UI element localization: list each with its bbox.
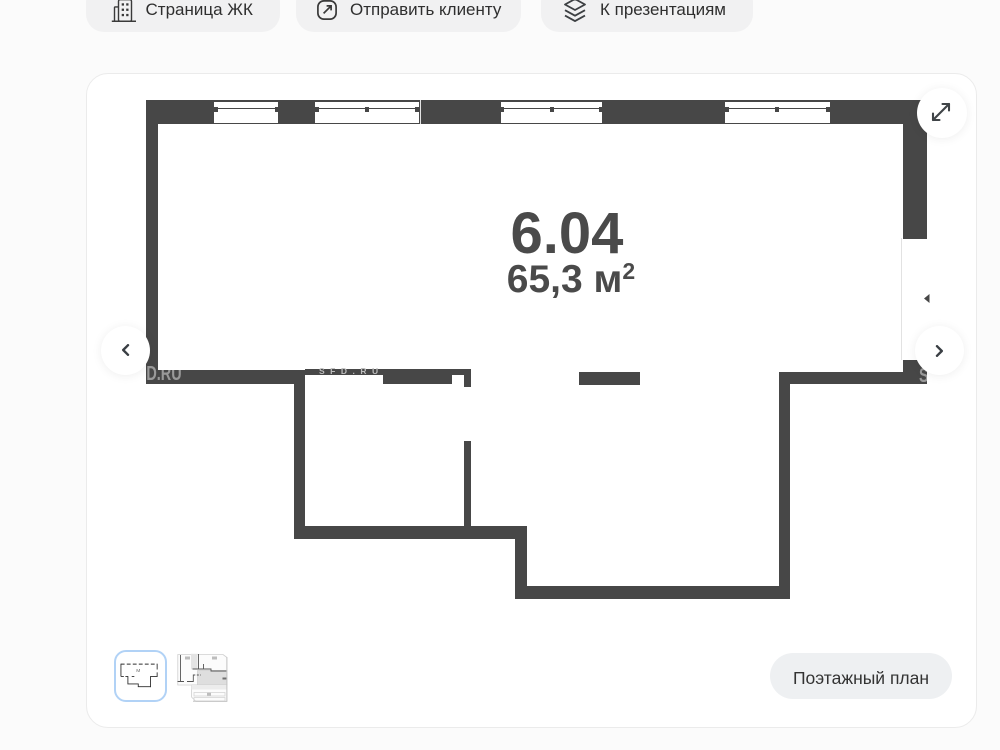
svg-text:М: М [136, 668, 140, 674]
